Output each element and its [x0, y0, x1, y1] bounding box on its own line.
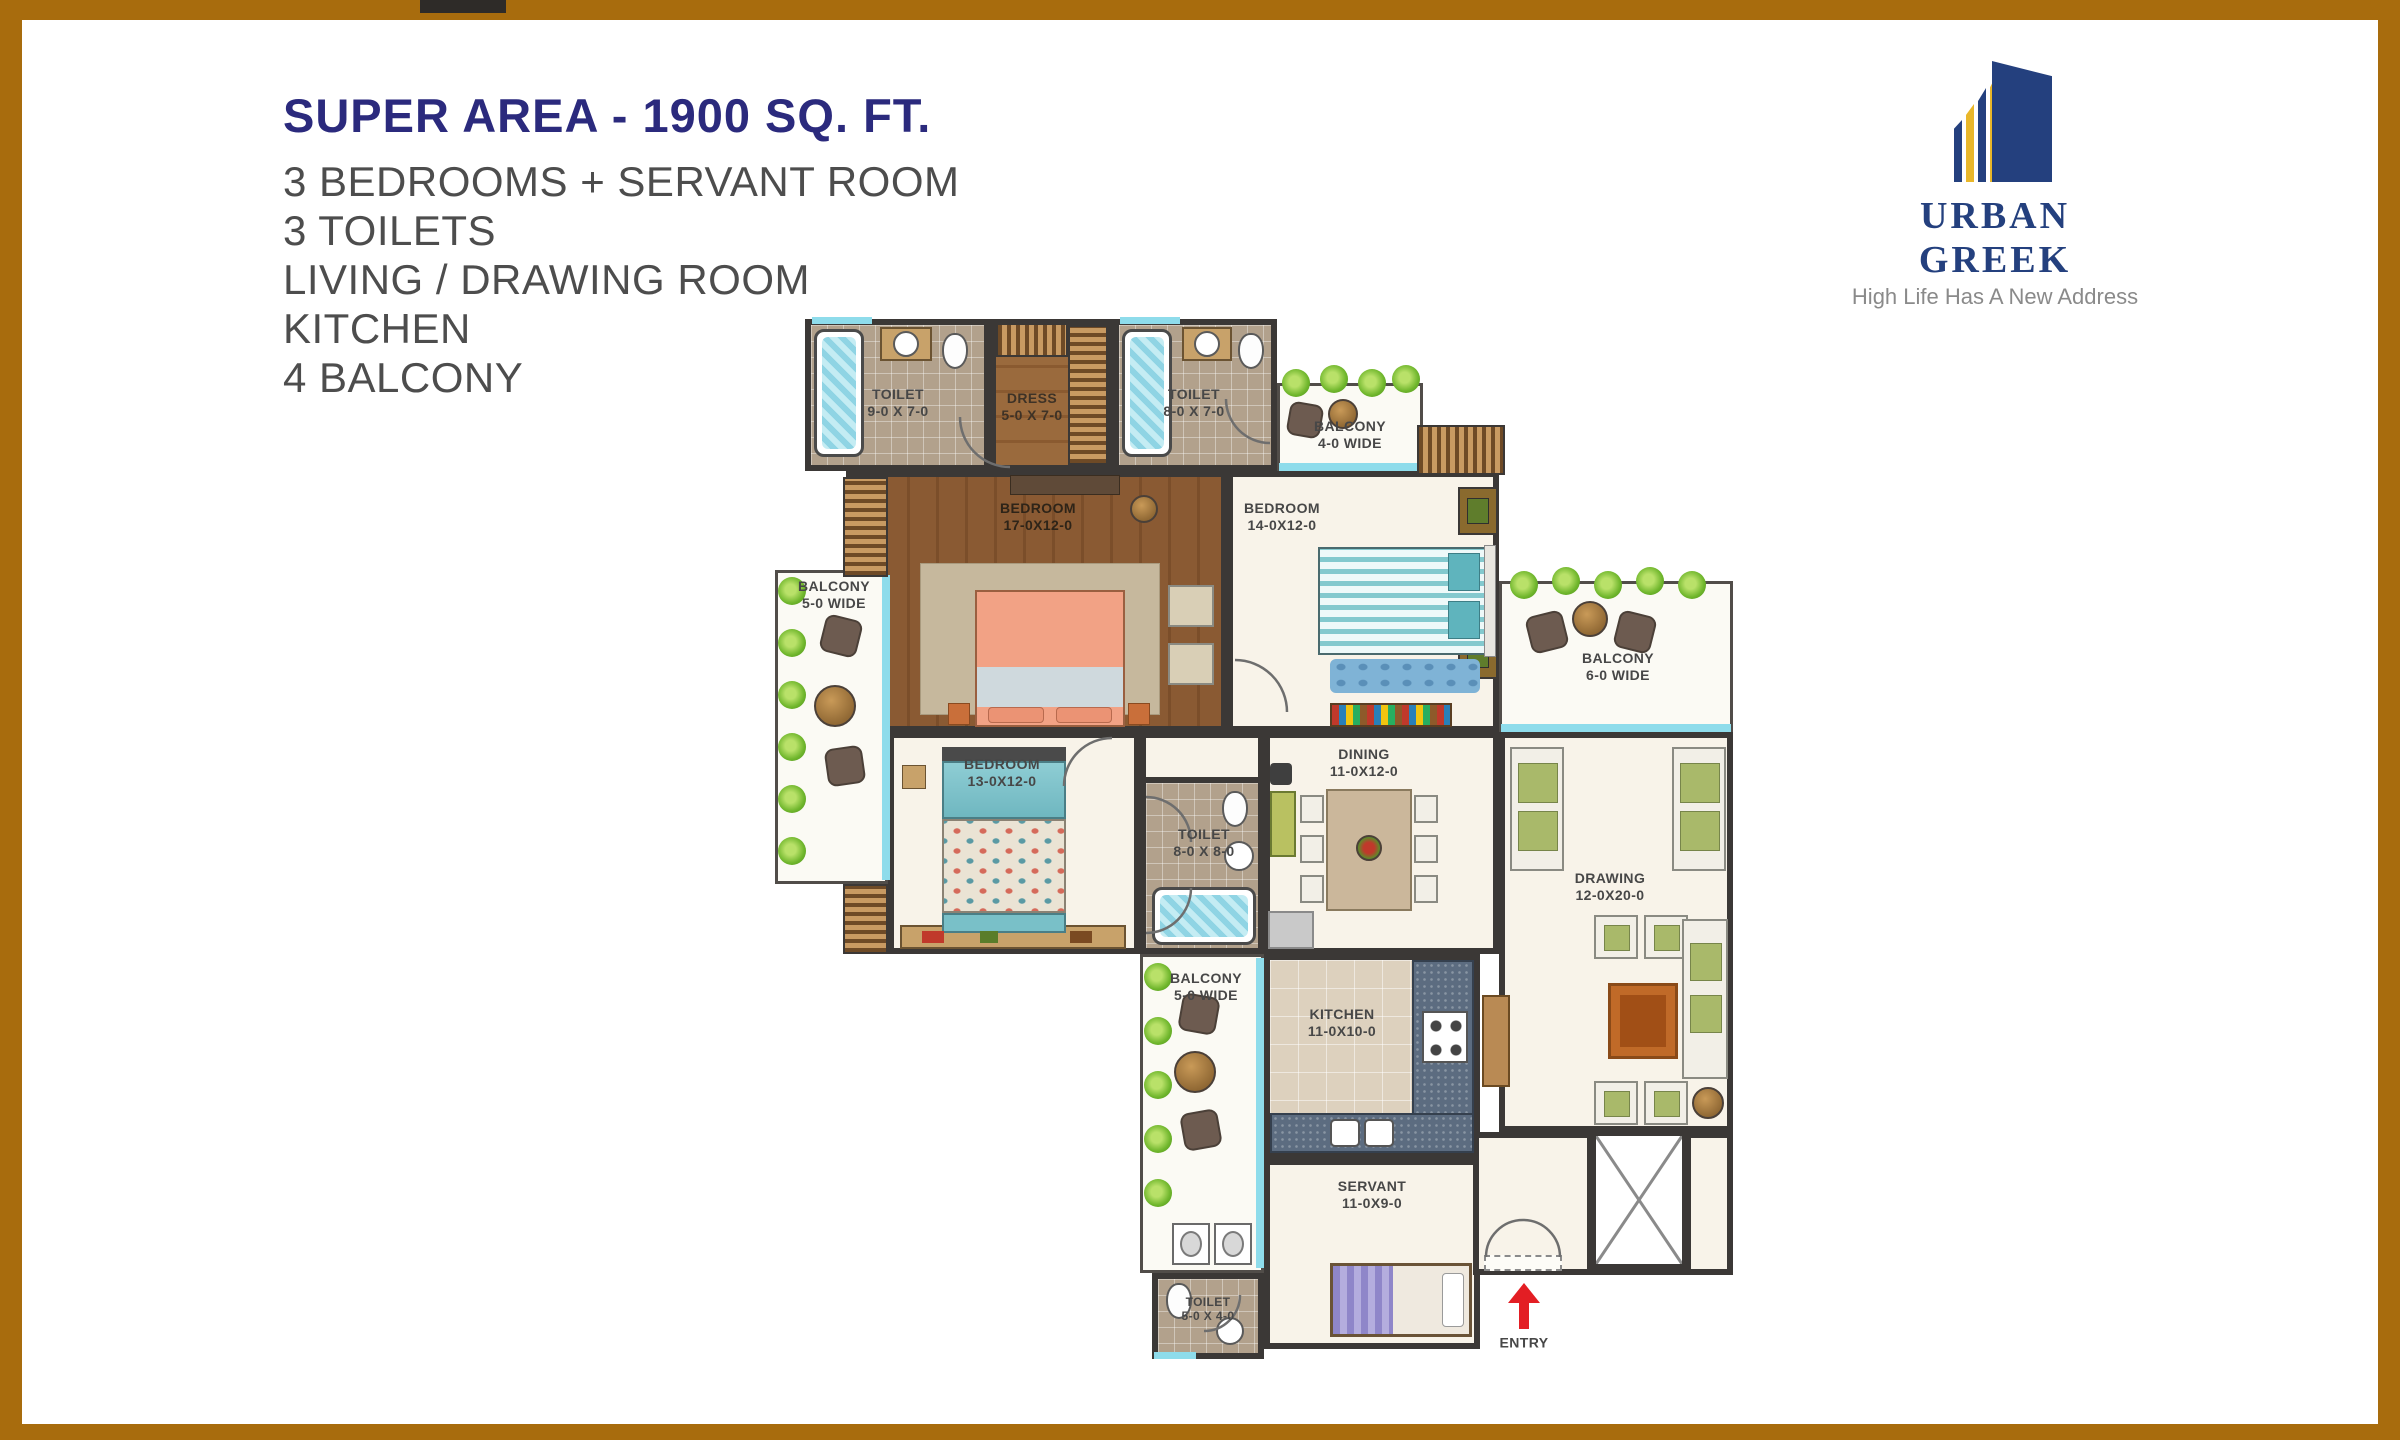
feature-bedrooms: 3 BEDROOMS + SERVANT ROOM: [283, 157, 959, 206]
plant-icon: [1144, 1017, 1172, 1045]
bed-servant-pillow: [1442, 1273, 1464, 1327]
stool-master: [1130, 495, 1158, 523]
label-balcony-right: BALCONY6-0 WIDE: [1582, 650, 1654, 684]
label-bedroom-right: BEDROOM14-0X12-0: [1244, 500, 1320, 534]
wardrobe-dress-side: [1068, 325, 1108, 465]
bathtub-3: [1152, 887, 1256, 945]
bed-servant-blanket: [1333, 1266, 1393, 1334]
plant-icon: [1282, 369, 1310, 397]
brochure-page: SUPER AREA - 1900 SQ. FT. 3 BEDROOMS + S…: [0, 0, 2400, 1440]
washing-machine-2: [1214, 1223, 1252, 1265]
cabinet-green: [1270, 791, 1296, 857]
brand-logo: URBAN GREEK High Life Has A New Address: [1845, 52, 2145, 310]
floor-plan: TOILET9-0 X 7-0 DRESS5-0 X 7-0 TOILET8-0…: [770, 295, 1750, 1375]
label-servant: SERVANT11-0X9-0: [1338, 1178, 1406, 1212]
plant-icon: [778, 785, 806, 813]
hallway: [1140, 732, 1264, 783]
label-drawing: DRAWING12-0X20-0: [1575, 870, 1645, 904]
balcony-bottom-table: [1174, 1051, 1216, 1093]
dresser-item-red: [922, 931, 944, 943]
plant-icon: [1358, 369, 1386, 397]
feature-toilets: 3 TOILETS: [283, 206, 959, 255]
label-bedroom-master: BEDROOM17-0X12-0: [1000, 500, 1076, 534]
dresser-item-green: [980, 931, 998, 943]
bookshelf: [1330, 703, 1452, 727]
plant-icon: [1144, 1179, 1172, 1207]
feature-kitchen: KITCHEN: [283, 304, 959, 353]
side-table-lower: [902, 765, 926, 789]
dresser-item-brown: [1070, 931, 1092, 943]
dining-chair-4: [1414, 795, 1438, 823]
bed-master-pillow-2: [1056, 707, 1112, 723]
label-toilet-servant: TOILET5-0 X 4-0: [1182, 1295, 1235, 1323]
bed-master-pillow-1: [988, 707, 1044, 723]
dresser-master: [1010, 475, 1120, 495]
window-balcony-bottom: [1256, 958, 1264, 1268]
armchair-master-1: [1168, 585, 1214, 627]
wardrobe-bedroom-right-top: [1417, 425, 1505, 475]
balcony-left-table: [814, 685, 856, 727]
label-balcony-top: BALCONY4-0 WIDE: [1314, 418, 1386, 452]
brand-tagline: High Life Has A New Address: [1845, 284, 2145, 310]
bed-lower-foot: [942, 913, 1066, 933]
armchair-master-2: [1168, 643, 1214, 685]
window-balcony-top: [1279, 463, 1421, 471]
feature-balcony: 4 BALCONY: [283, 353, 959, 402]
plant-icon: [778, 733, 806, 761]
lift-cross-icon: [1596, 1136, 1682, 1264]
wardrobe-lower-left: [843, 884, 888, 954]
feature-living: LIVING / DRAWING ROOM: [283, 255, 959, 304]
armchair-2-cushion: [1654, 925, 1680, 951]
sofa-3-cushion-b: [1690, 995, 1722, 1033]
plant-icon: [1594, 571, 1622, 599]
label-kitchen: KITCHEN11-0X10-0: [1308, 1006, 1376, 1040]
building-logo-icon: [1920, 52, 2070, 190]
balcony-right-table: [1572, 601, 1608, 637]
dining-chair-2: [1300, 835, 1324, 863]
plant-icon: [1678, 571, 1706, 599]
entry-label: ENTRY: [1500, 1335, 1549, 1352]
dining-centerpiece: [1356, 835, 1382, 861]
plant-icon: [778, 681, 806, 709]
window-toilet-servant: [1154, 1352, 1196, 1359]
cabinet-dark: [1270, 763, 1292, 785]
feature-list: SUPER AREA - 1900 SQ. FT. 3 BEDROOMS + S…: [283, 88, 959, 402]
rug-guest: [1330, 659, 1480, 693]
plant-icon: [1144, 1125, 1172, 1153]
scan-artifact: [420, 0, 506, 13]
bed-guest-pillow-1: [1448, 553, 1480, 591]
dining-chair-1: [1300, 795, 1324, 823]
label-dining: DINING11-0X12-0: [1330, 746, 1398, 780]
wc-3: [1222, 791, 1248, 827]
super-area-title: SUPER AREA - 1900 SQ. FT.: [283, 88, 959, 143]
washing-machine-1: [1172, 1223, 1210, 1265]
dining-chair-3: [1300, 875, 1324, 903]
sofa-1-cushion-b: [1518, 811, 1558, 851]
entry-arrow-icon: [1508, 1283, 1540, 1303]
brand-name: URBAN GREEK: [1845, 194, 2145, 282]
plant-icon: [1144, 963, 1172, 991]
nightstand-2: [1128, 703, 1150, 725]
window-balcony-right: [1501, 724, 1731, 732]
stove: [1422, 1011, 1468, 1063]
wc-2: [1238, 333, 1264, 369]
plant-icon: [1552, 567, 1580, 595]
sofa-1-cushion-a: [1518, 763, 1558, 803]
label-bedroom-lower: BEDROOM13-0X12-0: [964, 756, 1040, 790]
plant-icon: [1636, 567, 1664, 595]
dining-chair-5: [1414, 835, 1438, 863]
window-balcony-left: [882, 575, 890, 880]
bed-guest-pillow-2: [1448, 601, 1480, 639]
basin-2: [1194, 331, 1220, 357]
label-dress: DRESS5-0 X 7-0: [1001, 390, 1062, 424]
sink-bowl-2: [1364, 1119, 1394, 1147]
sofa-3-cushion-a: [1690, 943, 1722, 981]
armchair-1-cushion: [1604, 925, 1630, 951]
side-table-drawing: [1692, 1087, 1724, 1119]
wardrobe-unit-1: [1458, 487, 1498, 535]
entry-threshold: [1484, 1255, 1562, 1271]
sofa-2-cushion-b: [1680, 811, 1720, 851]
sink-bowl-1: [1330, 1119, 1360, 1147]
label-toilet-top-right: TOILET8-0 X 7-0: [1163, 386, 1224, 420]
plant-icon: [1392, 365, 1420, 393]
plant-icon: [778, 629, 806, 657]
plant-icon: [1144, 1071, 1172, 1099]
fridge: [1482, 995, 1510, 1087]
balcony-left-chair-2: [824, 745, 867, 788]
armchair-3-cushion: [1604, 1091, 1630, 1117]
wardrobe-dress-top: [996, 323, 1068, 357]
bed-master-sheet: [977, 667, 1123, 707]
label-toilet-mid: TOILET8-0 X 8-0: [1173, 826, 1234, 860]
entry-arrow-stem: [1519, 1303, 1529, 1329]
console-unit: [1268, 911, 1314, 949]
armchair-4-cushion: [1654, 1091, 1680, 1117]
bed-lower-quilt: [942, 819, 1066, 913]
sofa-2-cushion-a: [1680, 763, 1720, 803]
plant-icon: [1320, 365, 1348, 393]
balcony-bottom-chair-2: [1179, 1108, 1223, 1152]
coffee-table-top: [1620, 995, 1666, 1047]
window-toilet-2: [1120, 317, 1180, 324]
plant-icon: [778, 837, 806, 865]
dining-chair-6: [1414, 875, 1438, 903]
wardrobe-master-left: [843, 477, 888, 577]
plant-icon: [1510, 571, 1538, 599]
lift-shaft: [1587, 1127, 1691, 1273]
nightstand-1: [948, 703, 970, 725]
label-balcony-bottom: BALCONY5-0 WIDE: [1170, 970, 1242, 1004]
label-balcony-left: BALCONY5-0 WIDE: [798, 578, 870, 612]
bed-guest-headboard: [1484, 545, 1496, 657]
